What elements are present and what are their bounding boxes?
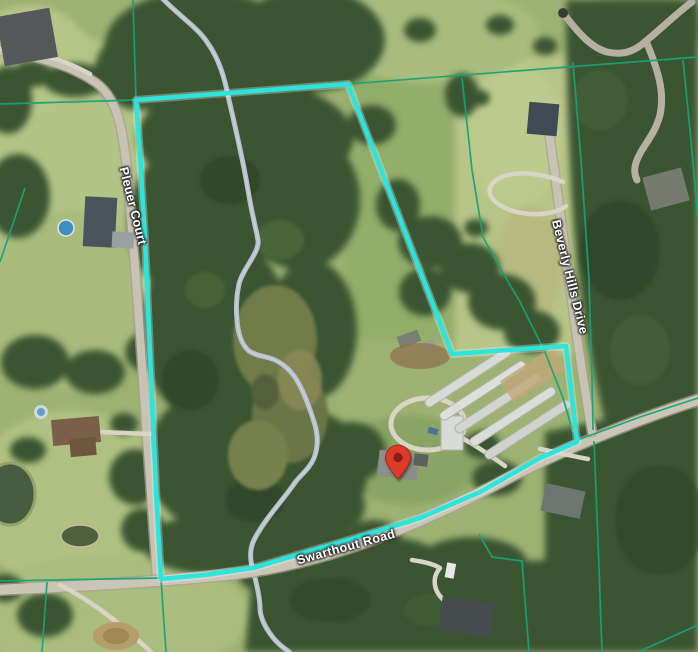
map-canvas[interactable]: Pleuer Court Beverly Hills Drive Swartho… bbox=[0, 0, 698, 652]
swimming-pool bbox=[58, 220, 74, 236]
dirt-yard bbox=[390, 343, 450, 369]
house-roof bbox=[438, 597, 494, 638]
pin-hole bbox=[393, 453, 402, 462]
pond bbox=[61, 525, 99, 547]
satellite-imagery bbox=[0, 0, 698, 652]
house-roof bbox=[527, 102, 560, 136]
house-roof bbox=[0, 8, 58, 67]
